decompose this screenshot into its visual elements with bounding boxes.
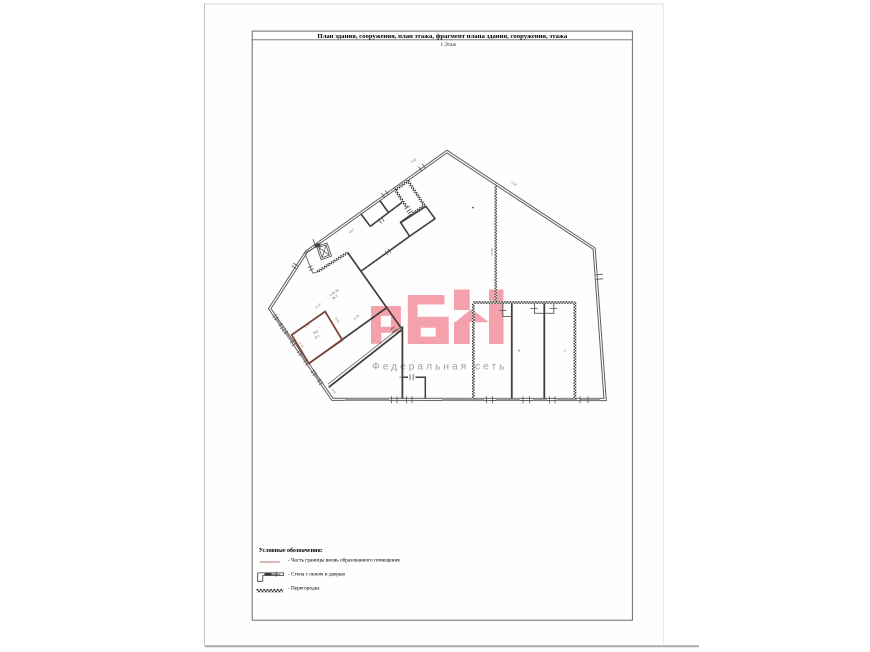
svg-text:Условные обозначения:: Условные обозначения: xyxy=(259,547,323,554)
svg-text:- Стена с окном и дверью: - Стена с окном и дверью xyxy=(288,572,345,578)
svg-text:1 Этаж: 1 Этаж xyxy=(441,42,457,48)
svg-text:Федеральная сеть: Федеральная сеть xyxy=(372,362,507,373)
svg-text:- Перегородка: - Перегородка xyxy=(288,586,320,592)
svg-text:в: в xyxy=(518,347,520,352)
svg-text:- Часть границы вновь образова: - Часть границы вновь образованного поме… xyxy=(288,557,400,564)
svg-text:с: с xyxy=(564,347,566,352)
svg-text:21.80: 21.80 xyxy=(490,248,494,256)
svg-text:План здания, сооружения, план: План здания, сооружения, план этажа, фра… xyxy=(317,33,567,40)
